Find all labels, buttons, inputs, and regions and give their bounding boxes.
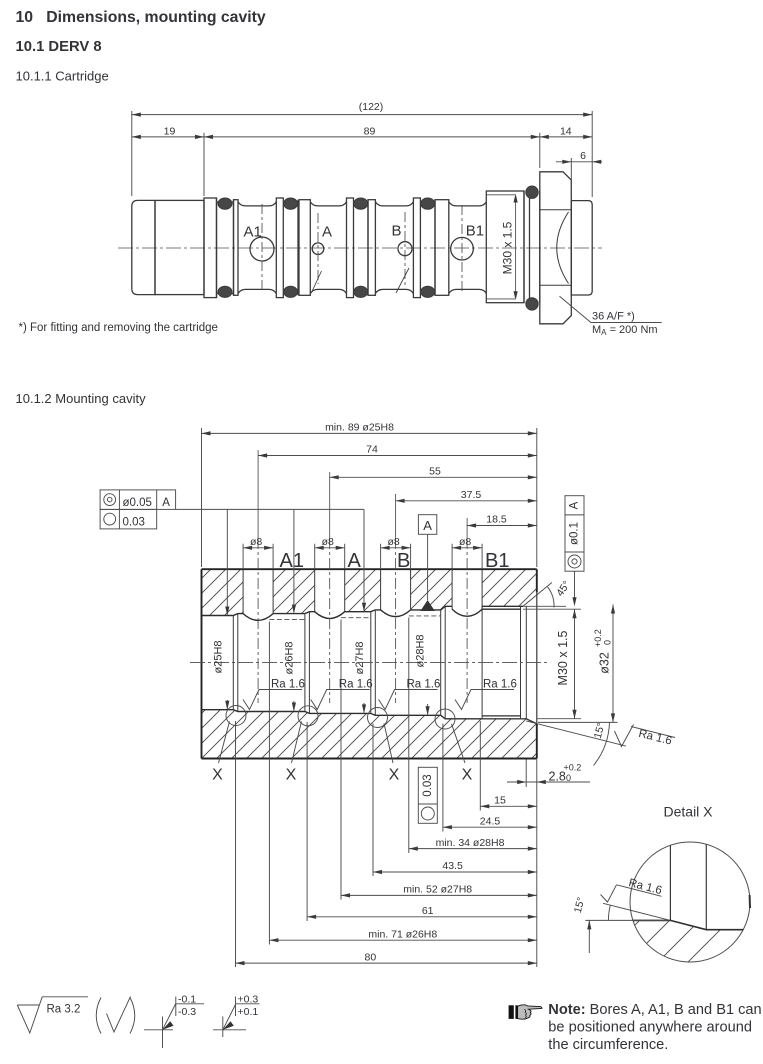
svg-text:X: X <box>462 767 473 784</box>
svg-text:80: 80 <box>365 951 377 963</box>
svg-text:0.03: 0.03 <box>123 517 145 529</box>
svg-text:B: B <box>392 223 402 240</box>
svg-text:43.5: 43.5 <box>442 860 463 872</box>
svg-text:+0.3: +0.3 <box>238 994 259 1006</box>
svg-text:min. 89 ø25H8: min. 89 ø25H8 <box>325 422 394 434</box>
svg-text:Detail X: Detail X <box>664 804 714 820</box>
svg-text:10.1.1 Cartridge: 10.1.1 Cartridge <box>16 69 109 84</box>
svg-text:ø8: ø8 <box>250 536 262 548</box>
svg-text:B1: B1 <box>466 223 484 240</box>
svg-text:ø25H8: ø25H8 <box>213 640 225 673</box>
svg-text:ø8: ø8 <box>459 536 471 548</box>
svg-text:X: X <box>212 767 223 784</box>
svg-text:*) For fitting and removing th: *) For fitting and removing the cartridg… <box>19 322 218 334</box>
svg-text:M30 x 1.5: M30 x 1.5 <box>501 221 515 274</box>
svg-text:Note: Bores A, A1, B and B1 ca: Note: Bores A, A1, B and B1 can <box>548 1002 761 1018</box>
svg-text:6: 6 <box>580 150 586 162</box>
svg-text:Ra 1.6: Ra 1.6 <box>483 678 517 690</box>
svg-text:+0.1: +0.1 <box>238 1006 259 1018</box>
svg-text:X: X <box>389 767 400 784</box>
svg-text:74: 74 <box>366 444 378 456</box>
svg-text:37.5: 37.5 <box>461 489 482 501</box>
svg-text:Ra 1.6: Ra 1.6 <box>407 678 441 690</box>
svg-text:B1: B1 <box>485 550 509 572</box>
svg-text:M30 x 1.5: M30 x 1.5 <box>556 631 570 686</box>
svg-text:18.5: 18.5 <box>486 514 507 526</box>
svg-text:89: 89 <box>364 125 376 137</box>
svg-text:36 A/F *): 36 A/F *) <box>592 311 635 323</box>
svg-text:A: A <box>162 497 170 509</box>
svg-text:ø8: ø8 <box>322 536 334 548</box>
svg-text:ø8: ø8 <box>387 536 399 548</box>
svg-text:0: 0 <box>603 640 613 645</box>
svg-text:10.1.2 Mounting cavity: 10.1.2 Mounting cavity <box>16 391 147 406</box>
svg-text:A: A <box>423 518 432 533</box>
svg-text:min. 52 ø27H8: min. 52 ø27H8 <box>403 884 472 896</box>
svg-text:B: B <box>397 550 410 572</box>
svg-text:14: 14 <box>560 125 572 137</box>
svg-text:+0.2: +0.2 <box>564 763 582 773</box>
svg-text:+0.2: +0.2 <box>593 629 603 647</box>
svg-text:A: A <box>569 501 581 509</box>
svg-text:0: 0 <box>566 773 571 783</box>
svg-text:ø0.05: ø0.05 <box>123 497 152 509</box>
svg-text:ø26H8: ø26H8 <box>283 641 295 674</box>
svg-text:A: A <box>322 224 332 241</box>
svg-text:61: 61 <box>422 905 434 917</box>
svg-text:24.5: 24.5 <box>480 815 501 827</box>
svg-text:-0.3: -0.3 <box>178 1006 196 1018</box>
svg-text:ø0.1: ø0.1 <box>569 522 581 545</box>
svg-text:min. 34 ø28H8: min. 34 ø28H8 <box>436 837 505 849</box>
svg-text:ø28H8: ø28H8 <box>414 634 426 667</box>
svg-text:15: 15 <box>494 795 506 807</box>
svg-text:A1: A1 <box>280 550 304 572</box>
svg-text:the circumference.: the circumference. <box>548 1037 668 1053</box>
svg-text:-0.1: -0.1 <box>178 994 196 1006</box>
svg-text:10.1 DERV 8: 10.1 DERV 8 <box>16 39 102 55</box>
svg-text:be positioned anywhere around: be positioned anywhere around <box>548 1020 752 1036</box>
svg-text:ø32: ø32 <box>597 652 611 674</box>
svg-text:55: 55 <box>429 466 441 478</box>
svg-text:19: 19 <box>164 125 176 137</box>
svg-text:(122): (122) <box>359 101 384 113</box>
svg-text:min. 71 ø26H8: min. 71 ø26H8 <box>368 928 437 940</box>
svg-text:Ra 1.6: Ra 1.6 <box>271 678 305 690</box>
svg-text:X: X <box>286 767 297 784</box>
svg-text:ø27H8: ø27H8 <box>354 641 366 674</box>
svg-text:A: A <box>348 550 362 572</box>
svg-text:10 Dimensions, mounting cavi: 10 Dimensions, mounting cavity <box>16 9 266 26</box>
svg-text:Ra 1.6: Ra 1.6 <box>339 678 373 690</box>
svg-text:Ra 3.2: Ra 3.2 <box>47 1004 81 1016</box>
svg-text:0.03: 0.03 <box>422 774 434 796</box>
svg-text:A1: A1 <box>244 224 262 241</box>
